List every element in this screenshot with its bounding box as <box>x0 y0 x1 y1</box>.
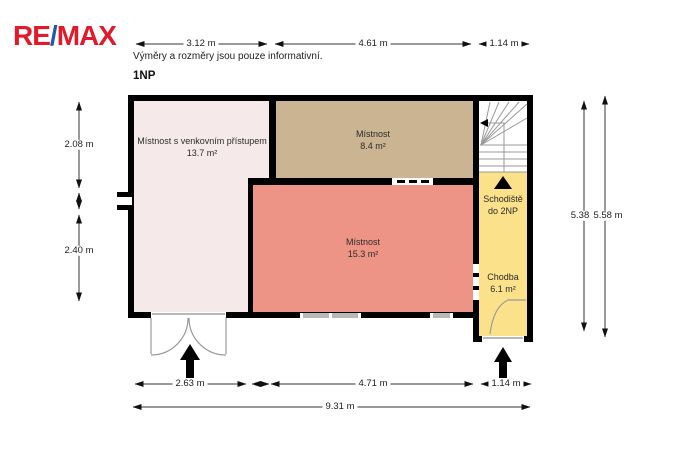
dim-bottom-1: 2.63 m <box>172 379 207 389</box>
door-opening-main-hallway <box>473 264 479 300</box>
hallway-entrance-arrow-icon <box>494 347 512 378</box>
window-main-room-1 <box>300 313 361 318</box>
room-name: Místnost s venkovním přístupem <box>137 135 267 147</box>
room-area: 15.3 m² <box>346 248 380 260</box>
dim-left-1: 2.08 m <box>61 140 96 150</box>
room-area: do 2NP <box>483 205 523 217</box>
dim-right-1: 5.38 <box>568 211 593 221</box>
dim-top-2: 4.61 m <box>355 39 390 49</box>
dim-top-3: 1.14 m <box>486 39 521 49</box>
hallway-entrance-opening <box>482 336 524 342</box>
floor-plan-drawing <box>0 0 684 456</box>
room-label-left: Místnost s venkovním přístupem 13.7 m² <box>137 135 267 159</box>
entrance-arrow-icon <box>180 344 200 378</box>
dim-bottom-2: 4.71 m <box>355 379 390 389</box>
floor-plan-page: { "logo": { "part1": "RE", "slash": "/",… <box>0 0 684 456</box>
room-label-stairs: Schodiště do 2NP <box>483 193 523 217</box>
room-name: Schodiště <box>483 193 523 205</box>
dim-right-2: 5.58 m <box>590 211 625 221</box>
room-label-hallway: Chodba 6.1 m² <box>487 271 519 295</box>
room-area: 8.4 m² <box>356 140 390 152</box>
dim-top-1: 3.12 m <box>183 39 218 49</box>
room-name: Chodba <box>487 271 519 283</box>
room-label-main: Místnost 15.3 m² <box>346 236 380 260</box>
dim-bottom-3: 1.14 m <box>488 379 523 389</box>
door-opening-top-main <box>392 178 433 185</box>
dim-left-2: 2.40 m <box>61 246 96 256</box>
window-main-room-2 <box>430 313 453 318</box>
entrance-opening <box>151 312 226 318</box>
room-name: Místnost <box>346 236 380 248</box>
room-name: Místnost <box>356 128 390 140</box>
room-area: 13.7 m² <box>137 147 267 159</box>
room-label-top: Místnost 8.4 m² <box>356 128 390 152</box>
room-area: 6.1 m² <box>487 283 519 295</box>
dim-total-width: 9.31 m <box>322 402 357 412</box>
